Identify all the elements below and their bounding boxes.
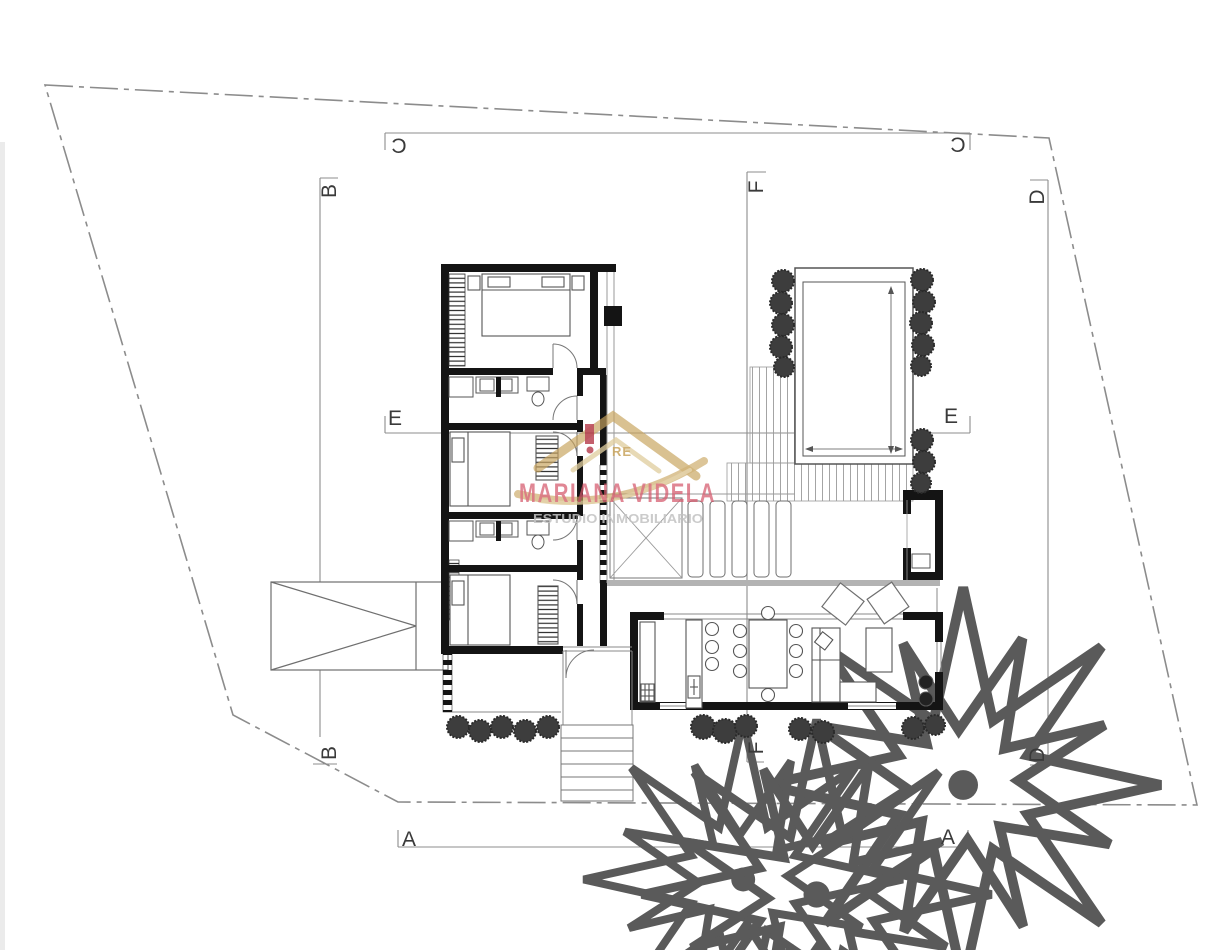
kitchen	[640, 620, 719, 708]
watermark-subtitle: ESTUDIO INMOBILIARIO	[533, 511, 703, 526]
planter	[919, 675, 933, 689]
stool	[706, 641, 719, 654]
marker-f-top: F	[745, 181, 768, 194]
marker-e-left: E	[388, 407, 402, 430]
bathroom-1	[449, 377, 577, 420]
marker-e-right: E	[944, 405, 958, 428]
entry-steps	[561, 725, 633, 801]
marker-a-right: A	[941, 826, 955, 849]
pool-deck	[750, 367, 795, 463]
floor-plan-drawing: C C E E A A B B F F D D RE MARIANA VIDEL…	[0, 0, 1220, 950]
bedroom-wing	[441, 264, 622, 654]
planter	[919, 692, 933, 706]
master-bed	[468, 274, 584, 336]
sink	[641, 684, 654, 701]
watermark-brand: MARIANA VIDELA	[519, 478, 716, 508]
dining-table	[749, 620, 787, 688]
pool-deck	[727, 463, 913, 501]
marker-d-top: D	[1026, 189, 1049, 204]
floor-plan-page: C C E E A A B B F F D D RE MARIANA VIDEL…	[0, 0, 1220, 950]
column	[604, 306, 622, 326]
sofa-chaise	[840, 682, 876, 702]
marker-a-left: A	[402, 828, 416, 851]
toilette-room	[903, 490, 943, 580]
marker-c-left: C	[391, 135, 406, 158]
marker-b-top: B	[318, 184, 341, 198]
closet	[538, 586, 558, 644]
marker-c-right: C	[950, 134, 965, 157]
stool	[706, 658, 719, 671]
entry	[561, 647, 633, 801]
coffee-table	[866, 628, 892, 672]
marker-f-bottom: F	[745, 742, 768, 755]
pool	[795, 268, 913, 464]
pool-area	[688, 268, 943, 580]
logo-monogram: RE	[612, 444, 632, 459]
scan-edge	[0, 142, 5, 950]
master-window	[449, 274, 465, 366]
dining-area	[734, 607, 803, 702]
marker-b-bottom: B	[318, 746, 341, 760]
stool	[706, 623, 719, 636]
marker-d-bottom: D	[1026, 747, 1049, 762]
bedroom-3	[450, 575, 577, 645]
carport	[271, 582, 448, 670]
deck-slats	[688, 501, 791, 577]
